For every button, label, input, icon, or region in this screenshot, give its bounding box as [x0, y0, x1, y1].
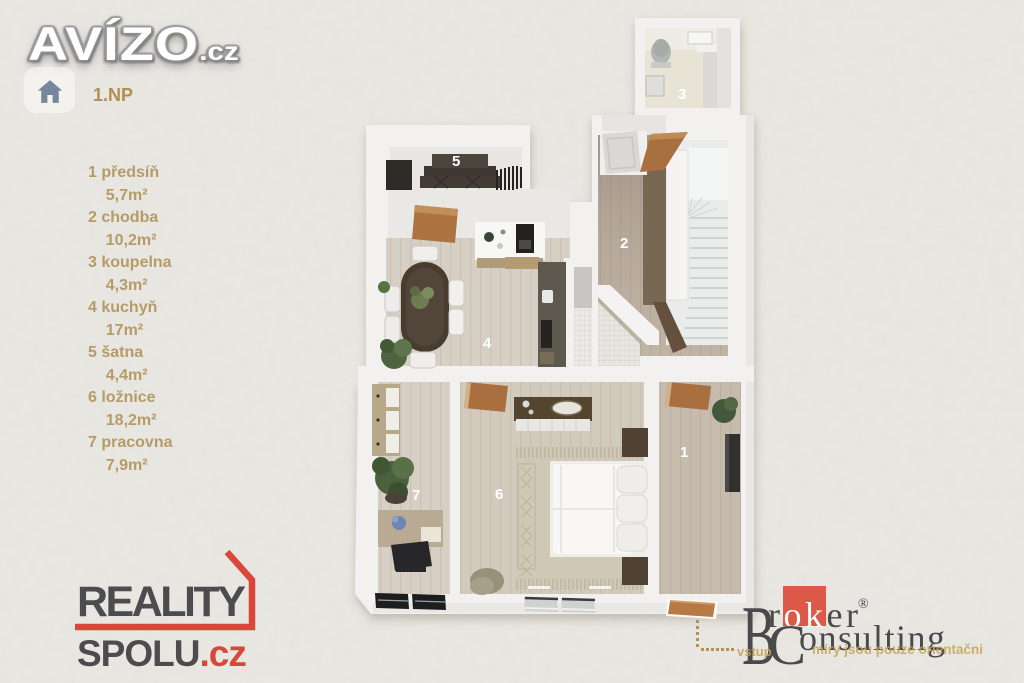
svg-text:1: 1 — [680, 444, 688, 461]
svg-text:2: 2 — [620, 235, 628, 252]
svg-text:6: 6 — [495, 486, 503, 503]
svg-text:3: 3 — [678, 86, 686, 103]
svg-text:5: 5 — [452, 153, 460, 170]
svg-text:7: 7 — [412, 487, 420, 504]
svg-text:4: 4 — [483, 335, 492, 352]
